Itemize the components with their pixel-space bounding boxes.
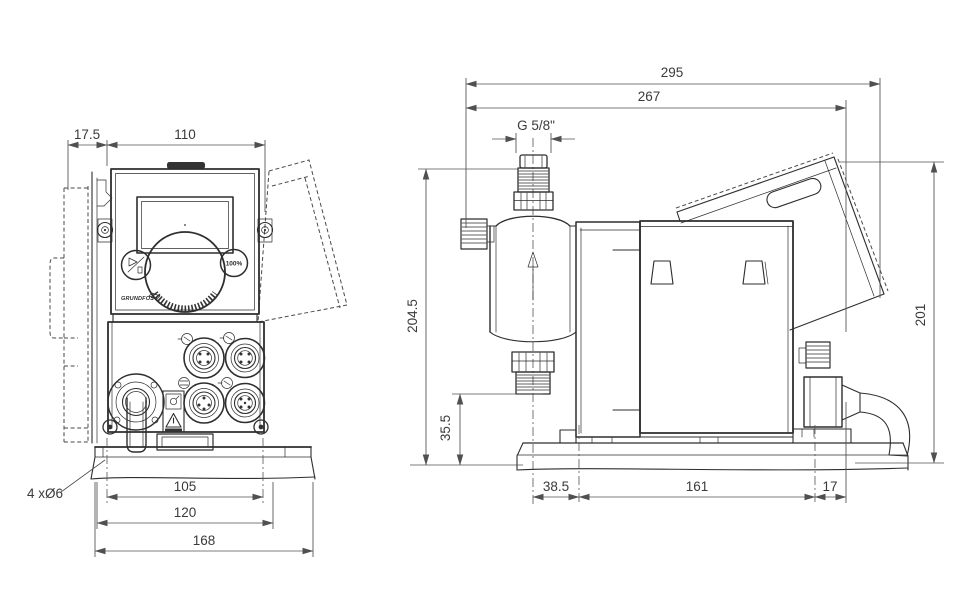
warning-label-plate <box>163 391 184 432</box>
lcd-display <box>137 197 233 253</box>
dim-center-to-hole: 38.5 <box>543 479 569 494</box>
io-icon-4 <box>218 378 233 389</box>
mounting-plate-front <box>91 434 315 504</box>
housing-top-tab <box>167 162 205 169</box>
dim-hole-spacing: 105 <box>174 479 197 494</box>
dim-overall-length: 295 <box>661 65 684 80</box>
mounting-plate-side <box>517 425 908 504</box>
max-button-label: 100% <box>226 261 243 268</box>
drain-flange <box>108 374 164 452</box>
control-panel: 100% GRUNDFOS <box>121 197 248 312</box>
connector-socket-2 <box>226 339 265 378</box>
dim-body-height: 201 <box>913 304 928 327</box>
pump-body-side <box>576 221 793 437</box>
technical-drawing-page: 100% GRUNDFOS <box>0 0 976 600</box>
io-icon-2 <box>220 333 235 344</box>
dosing-head <box>461 216 576 394</box>
dim-wall-offset: 17.5 <box>74 127 100 142</box>
brand-wordmark: GRUNDFOS <box>121 296 154 302</box>
dim-plate-width: 120 <box>174 505 197 520</box>
tilted-control-cube <box>676 153 888 330</box>
dim-thread: G 5/8" <box>517 118 555 133</box>
clip-1 <box>651 261 673 284</box>
dim-overall-width: 168 <box>193 533 216 548</box>
front-view: 100% GRUNDFOS <box>27 127 347 557</box>
dim-overall-height: 204.5 <box>405 299 420 333</box>
wall-bracket-hidden <box>50 172 112 443</box>
dim-length-to-corner: 267 <box>638 89 661 104</box>
connector-socket-4 <box>226 384 265 423</box>
housing-box <box>640 221 793 433</box>
adjustment-knob <box>145 232 225 312</box>
dim-hole-spacing-side: 161 <box>686 479 709 494</box>
dim-width: 110 <box>174 127 196 142</box>
front-dimensions: 17.5 110 105 120 168 4 xØ6 <box>27 127 313 557</box>
mains-cable <box>860 393 910 456</box>
front-foot <box>560 430 576 443</box>
dim-rear-offset: 17 <box>822 479 837 494</box>
display-dot <box>184 224 186 226</box>
start-stop-icon <box>128 257 144 273</box>
adapter-flange <box>576 222 640 437</box>
bracket-hook <box>97 180 112 206</box>
union-nut <box>514 192 553 210</box>
discharge-fitting <box>514 155 553 210</box>
io-icon-3 <box>179 378 190 389</box>
cable-gland-assembly <box>799 342 910 456</box>
side-view: 295 267 G 5/8" 204.5 35.5 201 38 <box>405 65 944 504</box>
holes-leader-line <box>61 460 105 492</box>
dim-mounting-holes-note: 4 xØ6 <box>27 486 63 501</box>
dim-suction-height: 35.5 <box>438 415 453 441</box>
connection-panel <box>103 322 268 452</box>
connector-socket-3 <box>184 383 224 423</box>
tilted-hood-hidden <box>258 160 347 322</box>
clip-2 <box>743 261 765 284</box>
pump-dimensional-drawing: 100% GRUNDFOS <box>0 0 976 600</box>
panel-split-strip <box>113 314 257 322</box>
